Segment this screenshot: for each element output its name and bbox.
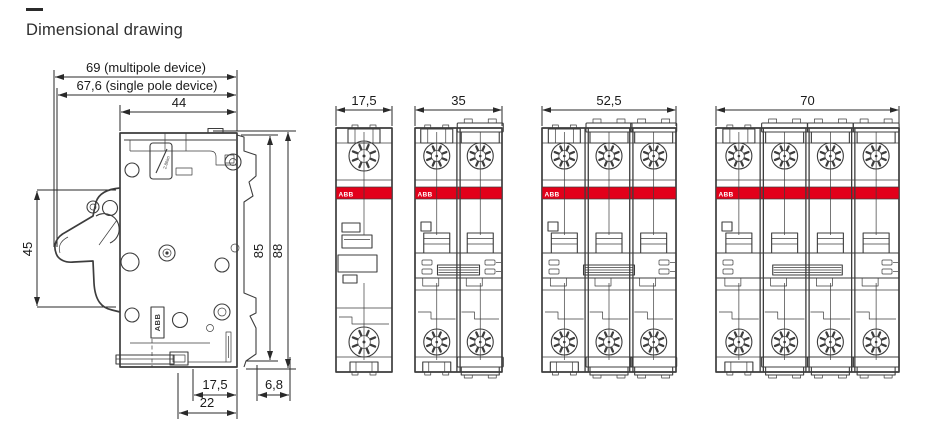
front-view-three-pole: 52,5ABB (530, 90, 690, 390)
front-width-label: 52,5 (596, 93, 621, 108)
dim-multipole-width: 69 (multipole device) (86, 60, 206, 75)
front-view-four-pole: 70ABB (700, 90, 930, 390)
pole-group (418, 125, 456, 375)
front-view-dimension: 17,5 (336, 93, 392, 126)
page-title: Dimensional drawing (26, 21, 183, 40)
abb-brand-text: ABB (339, 192, 354, 199)
pole-group (762, 119, 808, 378)
dimensional-drawing-page: Dimensional drawing (0, 0, 938, 445)
abb-brand-band: ABB (716, 187, 899, 199)
front-width-label: 35 (451, 93, 465, 108)
dim-rear-depth: 6,8 (265, 377, 283, 392)
tie-bar (542, 253, 676, 278)
abb-brand-text: ABB (545, 192, 560, 199)
abb-brand-text: ABB (719, 192, 734, 199)
pole-group (719, 125, 759, 375)
terminal-clamp-bottom (586, 357, 632, 378)
toggle-handle (421, 222, 450, 286)
dim-front-width: 44 (172, 95, 186, 110)
terminal-clamp-bottom (725, 362, 753, 375)
terminal-clamp-bottom (762, 357, 808, 378)
terminal-clamp-bottom (423, 362, 451, 375)
pole-group (545, 125, 584, 375)
abb-logo-text: ABB (153, 314, 162, 332)
side-view-drawing: 69 (multipole device) 67,6 (single pole … (20, 55, 310, 445)
terminal-clamp-bottom (853, 357, 899, 378)
terminal-clamp-bottom (350, 362, 378, 375)
pole-group (338, 125, 389, 375)
terminal-clamp-bottom (631, 357, 677, 378)
front-view-dimension: 35 (415, 93, 502, 126)
front-width-label: 17,5 (351, 93, 376, 108)
tie-bar (415, 253, 502, 278)
terminal-clamp-bottom (457, 357, 503, 378)
terminal-clamp-bottom (550, 362, 578, 375)
abb-brand-band: ABB (415, 187, 502, 199)
terminal-clamp-bottom (807, 357, 853, 378)
pole-group (853, 119, 899, 378)
front-width-label: 70 (800, 93, 814, 108)
front-view-two-pole: 35ABB (405, 90, 520, 390)
toggle-handle (548, 222, 577, 286)
dim-total-height: 88 (270, 244, 285, 258)
front-view-dimension: 52,5 (542, 93, 676, 126)
front-view-dimension: 70 (716, 93, 899, 126)
tie-bar (716, 253, 899, 278)
dim-body-height: 85 (251, 244, 266, 258)
side-view-details: 2.8Nm ABB (87, 143, 241, 367)
section-dash (26, 8, 43, 11)
abb-brand-text: ABB (418, 192, 433, 199)
toggle-handle (338, 223, 377, 283)
dim-singlepole-width: 67,6 (single pole device) (77, 78, 218, 93)
pole-group (457, 119, 503, 378)
pole-group (631, 119, 677, 378)
dim-din-width: 17,5 (202, 377, 227, 392)
pole-group (807, 119, 853, 378)
front-view-single-pole: 17,5ABB (325, 90, 405, 390)
dim-base-width: 22 (200, 395, 214, 410)
toggle-handle (722, 222, 752, 286)
dim-front-height: 45 (20, 242, 35, 256)
pole-group (586, 119, 632, 378)
section-header: Dimensional drawing (26, 8, 183, 40)
breaker-body (415, 128, 502, 372)
